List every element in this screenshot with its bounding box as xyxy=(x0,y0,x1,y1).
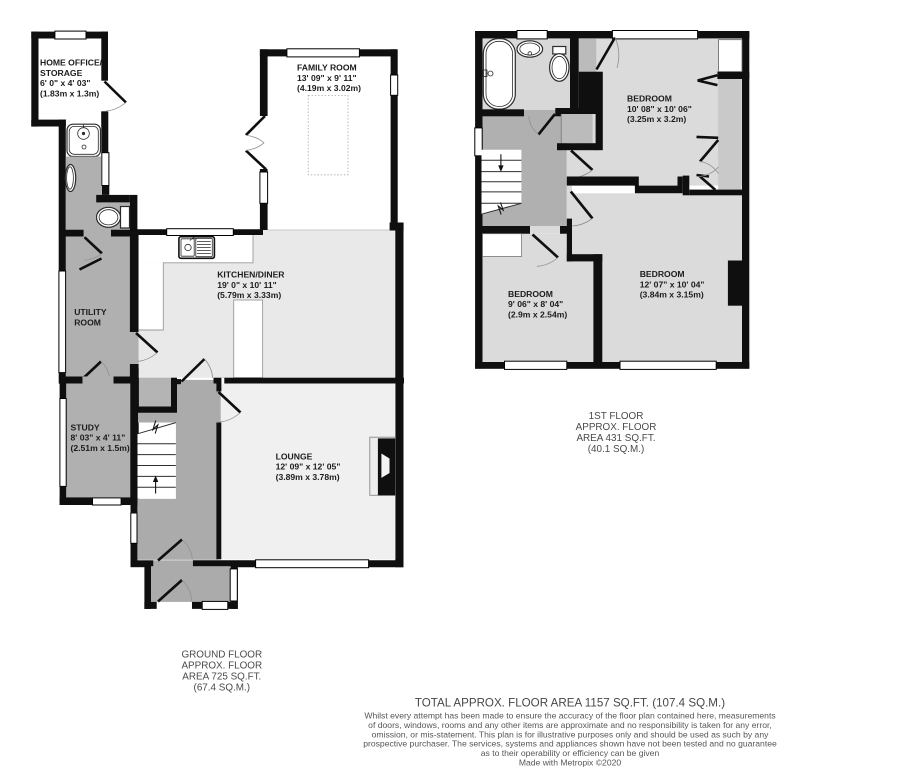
svg-text:AREA 725 SQ.FT.: AREA 725 SQ.FT. xyxy=(182,672,261,683)
svg-text:TOTAL APPROX. FLOOR AREA 1157: TOTAL APPROX. FLOOR AREA 1157 SQ.FT. (10… xyxy=(415,697,725,710)
svg-text:8' 03" x 4' 11": 8' 03" x 4' 11" xyxy=(71,433,126,443)
svg-text:APPROX. FLOOR: APPROX. FLOOR xyxy=(181,661,262,672)
svg-text:(3.89m x 3.78m): (3.89m x 3.78m) xyxy=(276,472,340,482)
svg-text:(3.25m x 3.2m): (3.25m x 3.2m) xyxy=(627,114,686,124)
svg-text:(5.79m x 3.33m): (5.79m x 3.33m) xyxy=(217,290,281,300)
svg-text:ROOM: ROOM xyxy=(74,317,101,327)
svg-text:(2.51m x 1.5m): (2.51m x 1.5m) xyxy=(71,443,130,453)
svg-text:(4.19m x 3.02m): (4.19m x 3.02m) xyxy=(297,83,361,93)
svg-text:APPROX. FLOOR: APPROX. FLOOR xyxy=(576,422,657,433)
svg-text:BEDROOM: BEDROOM xyxy=(640,269,685,279)
svg-text:UTILITY: UTILITY xyxy=(74,307,107,317)
svg-text:LOUNGE: LOUNGE xyxy=(276,451,313,461)
svg-text:19' 0" x 10' 11": 19' 0" x 10' 11" xyxy=(217,280,277,290)
svg-text:BEDROOM: BEDROOM xyxy=(508,289,553,299)
svg-text:6' 0" x 4' 03": 6' 0" x 4' 03" xyxy=(40,78,90,88)
svg-text:BEDROOM: BEDROOM xyxy=(627,94,672,104)
svg-text:HOME OFFICE/: HOME OFFICE/ xyxy=(40,58,103,68)
svg-text:Made with Metropix ©2020: Made with Metropix ©2020 xyxy=(519,757,622,767)
svg-text:(3.84m x 3.15m): (3.84m x 3.15m) xyxy=(640,290,704,300)
svg-text:(2.9m x 2.54m): (2.9m x 2.54m) xyxy=(508,309,567,319)
svg-text:12' 07" x 10' 04": 12' 07" x 10' 04" xyxy=(640,279,705,289)
svg-text:FAMILY ROOM: FAMILY ROOM xyxy=(297,63,357,73)
svg-text:KITCHEN/DINER: KITCHEN/DINER xyxy=(217,270,285,280)
svg-text:(67.4 SQ.M.): (67.4 SQ.M.) xyxy=(194,683,251,694)
svg-text:(1.83m x 1.3m): (1.83m x 1.3m) xyxy=(40,88,99,98)
svg-text:9' 06" x 8' 04": 9' 06" x 8' 04" xyxy=(508,299,563,309)
svg-text:1ST FLOOR: 1ST FLOOR xyxy=(589,411,644,422)
svg-text:STUDY: STUDY xyxy=(71,422,100,432)
svg-text:AREA 431 SQ.FT.: AREA 431 SQ.FT. xyxy=(576,433,655,444)
svg-text:STORAGE: STORAGE xyxy=(40,68,83,78)
svg-text:13' 09" x 9' 11": 13' 09" x 9' 11" xyxy=(297,73,357,83)
svg-text:12' 09" x 12' 05": 12' 09" x 12' 05" xyxy=(276,462,341,472)
svg-text:GROUND FLOOR: GROUND FLOOR xyxy=(181,650,262,661)
svg-text:10' 08" x 10' 06": 10' 08" x 10' 06" xyxy=(627,104,692,114)
svg-text:(40.1 SQ.M.): (40.1 SQ.M.) xyxy=(588,444,645,455)
